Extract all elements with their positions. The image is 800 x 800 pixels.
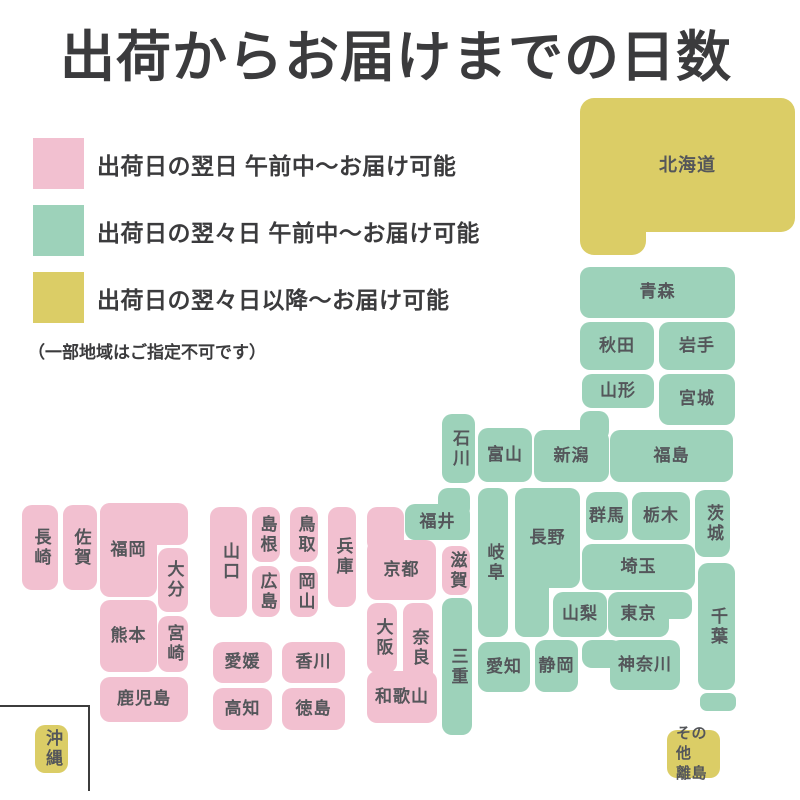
prefecture-kochi: 高知 [213, 688, 272, 730]
prefecture-kagawa-label: 香川 [296, 651, 332, 674]
prefecture-chiba: 千葉 [698, 563, 735, 690]
prefecture-akita: 秋田 [580, 322, 654, 370]
prefecture-nagasaki: 長崎 [22, 505, 58, 590]
japan-prefecture-tile-map: 北海道青森秋田岩手山形宮城福島新潟富山石川福井群馬栃木茨城埼玉長野岐阜山梨東京千… [0, 0, 800, 800]
prefecture-akita-label: 秋田 [599, 335, 635, 358]
prefecture-miyagi-label: 宮城 [679, 388, 715, 411]
prefecture-kanagawa: 神奈川 [610, 640, 680, 690]
prefecture-yamanashi: 山梨 [553, 592, 607, 637]
prefecture-wakayama: 和歌山 [367, 671, 437, 723]
prefecture-other-islands-label: その他 離島 [667, 724, 720, 785]
prefecture-kyoto-label: 京都 [384, 559, 420, 582]
prefecture-tokyo: 東京 [608, 592, 669, 637]
prefecture-wakayama-label: 和歌山 [375, 686, 429, 709]
prefecture-yamaguchi: 山口 [210, 507, 247, 617]
prefecture-kumamoto-label: 熊本 [111, 625, 147, 648]
prefecture-miyazaki: 宮崎 [158, 616, 188, 672]
prefecture-tokushima-label: 徳島 [296, 698, 332, 721]
prefecture-shimane-label: 島根 [255, 515, 278, 555]
prefecture-ibaraki-label: 茨城 [701, 504, 724, 544]
prefecture-fukuoka-label: 福岡 [111, 539, 147, 562]
prefecture-nagasaki-label: 長崎 [29, 528, 52, 568]
prefecture-hokkaido: 北海道 [580, 98, 795, 232]
prefecture-yamanashi-label: 山梨 [562, 603, 598, 626]
prefecture-toyama-label: 富山 [487, 444, 523, 467]
prefecture-saitama-label: 埼玉 [621, 556, 657, 579]
prefecture-chiba-label: 千葉 [705, 607, 728, 647]
prefecture-shizuoka: 静岡 [535, 640, 578, 692]
prefecture-hyogo: 兵庫 [328, 507, 356, 607]
prefecture-ishikawa: 石川 [442, 414, 475, 483]
prefecture-hokkaido-label: 北海道 [659, 153, 716, 177]
prefecture-nagano-label: 長野 [530, 527, 566, 550]
prefecture-shiga: 滋賀 [442, 546, 470, 595]
prefecture-kagoshima: 鹿児島 [100, 677, 188, 722]
prefecture-fukushima-label: 福島 [654, 445, 690, 468]
prefecture-gifu: 岐阜 [478, 488, 508, 637]
prefecture-kyoto: 京都 [367, 540, 436, 600]
prefecture-gunma: 群馬 [586, 492, 628, 540]
prefecture-tochigi: 栃木 [632, 492, 690, 540]
prefecture-ishikawa-label: 石川 [447, 429, 470, 469]
prefecture-aomori-label: 青森 [640, 281, 676, 304]
prefecture-iwate: 岩手 [659, 322, 735, 370]
prefecture-hiroshima-label: 広島 [255, 572, 278, 612]
prefecture-osaka: 大阪 [367, 603, 397, 673]
prefecture-gifu-label: 岐阜 [482, 543, 505, 583]
prefecture-ehime-label: 愛媛 [225, 651, 261, 674]
prefecture-fukushima: 福島 [610, 430, 733, 482]
prefecture-kochi-label: 高知 [225, 698, 261, 721]
prefecture-tokyo-label: 東京 [621, 603, 657, 626]
prefecture-kumamoto: 熊本 [100, 600, 157, 672]
prefecture-toyama: 富山 [478, 428, 532, 482]
prefecture-saga: 佐賀 [63, 505, 97, 590]
prefecture-shizuoka-label: 静岡 [539, 655, 575, 678]
prefecture-okinawa-label: 沖縄 [40, 729, 63, 769]
prefecture-iwate-label: 岩手 [679, 335, 715, 358]
prefecture-fukuoka: 福岡 [100, 503, 157, 597]
delivery-days-infographic: 出荷からお届けまでの日数 出荷日の翌日 午前中〜お届け可能 出荷日の翌々日 午前… [0, 0, 800, 800]
prefecture-yamaguchi-label: 山口 [217, 542, 240, 582]
prefecture-nagano: 長野 [515, 488, 580, 588]
prefecture-aichi-label: 愛知 [486, 656, 522, 679]
prefecture-tottori-label: 鳥取 [293, 515, 316, 555]
prefecture-tochigi-label: 栃木 [643, 505, 679, 528]
prefecture-kanagawa-label: 神奈川 [618, 654, 672, 677]
prefecture-gunma-label: 群馬 [589, 505, 625, 528]
prefecture-hiroshima: 広島 [252, 566, 280, 617]
prefecture-fukui-label: 福井 [420, 511, 456, 534]
prefecture-ehime: 愛媛 [213, 642, 272, 683]
prefecture-okayama: 岡山 [290, 566, 318, 617]
prefecture-nara-label: 奈良 [407, 628, 430, 668]
prefecture-saga-label: 佐賀 [69, 528, 92, 568]
prefecture-mie-label: 三重 [446, 647, 469, 687]
prefecture-mie: 三重 [442, 598, 472, 735]
prefecture-shiga-label: 滋賀 [445, 551, 468, 591]
prefecture-ibaraki: 茨城 [695, 490, 730, 557]
prefecture-kagawa: 香川 [282, 642, 345, 683]
prefecture-hyogo-label: 兵庫 [331, 537, 354, 577]
prefecture-osaka-label: 大阪 [371, 618, 394, 658]
prefecture-niigata-label: 新潟 [554, 445, 590, 468]
prefecture-shimane: 島根 [252, 507, 280, 562]
prefecture-aichi: 愛知 [478, 642, 530, 692]
prefecture-saitama: 埼玉 [582, 544, 695, 590]
prefecture-tokushima: 徳島 [282, 688, 345, 730]
prefecture-fukui: 福井 [405, 504, 470, 540]
prefecture-niigata: 新潟 [534, 430, 609, 482]
prefecture-other-islands: その他 離島 [667, 730, 720, 778]
prefecture-okayama-label: 岡山 [293, 572, 316, 612]
prefecture-okinawa: 沖縄 [35, 725, 68, 773]
prefecture-islands [700, 693, 736, 711]
prefecture-oita: 大分 [158, 548, 188, 612]
prefecture-yamagata: 山形 [582, 374, 654, 408]
prefecture-tottori: 鳥取 [290, 507, 318, 562]
prefecture-kagoshima-label: 鹿児島 [117, 688, 171, 711]
prefecture-miyagi: 宮城 [659, 374, 735, 425]
prefecture-oita-label: 大分 [162, 560, 185, 600]
prefecture-aomori: 青森 [580, 267, 735, 318]
prefecture-miyazaki-label: 宮崎 [162, 624, 185, 664]
prefecture-yamagata-label: 山形 [600, 380, 636, 403]
